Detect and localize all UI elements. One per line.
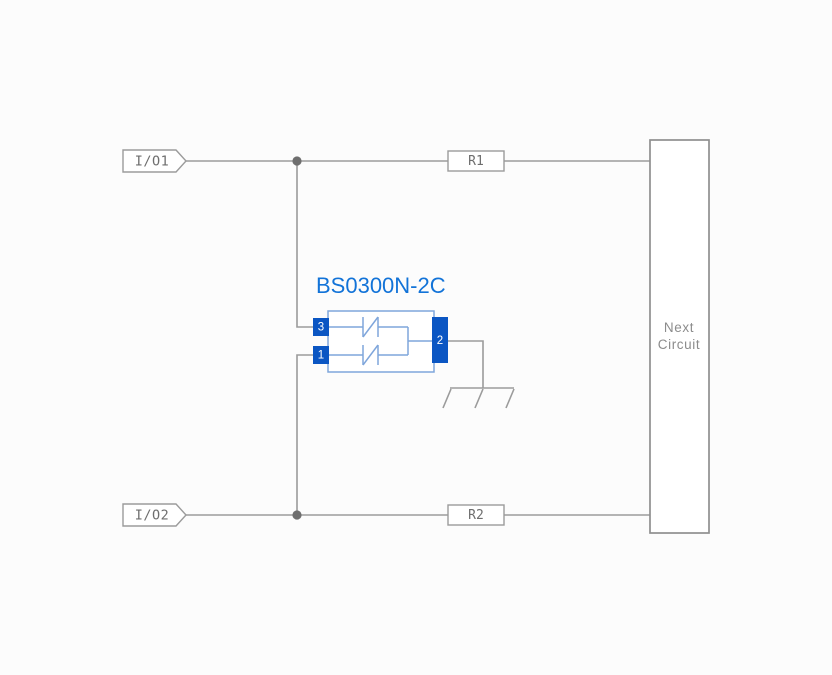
wire-junction-top-to-pin3 bbox=[297, 161, 313, 327]
next-circuit-block: Next Circuit bbox=[650, 140, 709, 533]
next-circuit-label-line2: Circuit bbox=[658, 337, 700, 352]
junction-dot-top bbox=[292, 156, 301, 165]
r2-label: R2 bbox=[468, 508, 484, 523]
pin-2-number: 2 bbox=[437, 335, 443, 347]
io2-terminal: I/O2 bbox=[123, 504, 186, 526]
pin-3: 3 bbox=[313, 318, 329, 336]
ground-hash-middle bbox=[475, 389, 483, 408]
wire-pin2-to-ground bbox=[448, 341, 483, 388]
schematic-page: I/O1 I/O2 R1 R2 Next Circuit BS0300N-2C bbox=[0, 0, 832, 675]
io1-label: I/O1 bbox=[135, 154, 170, 170]
io1-terminal: I/O1 bbox=[123, 150, 186, 172]
ground-hash-left bbox=[443, 389, 451, 408]
resistor-r2: R2 bbox=[448, 505, 504, 525]
io2-label: I/O2 bbox=[135, 508, 170, 524]
r1-label: R1 bbox=[468, 154, 484, 169]
pin-2: 2 bbox=[432, 317, 448, 363]
pin-1: 1 bbox=[313, 346, 329, 364]
tvs-diode-component: BS0300N-2C 3 bbox=[313, 273, 448, 372]
wire-pin1-to-junction-bottom bbox=[297, 355, 313, 515]
ground-hash-right bbox=[506, 389, 514, 408]
schematic-canvas: I/O1 I/O2 R1 R2 Next Circuit BS0300N-2C bbox=[0, 0, 832, 675]
pin-1-number: 1 bbox=[318, 350, 324, 362]
component-title: BS0300N-2C bbox=[316, 273, 446, 298]
ground-icon bbox=[443, 388, 514, 408]
resistor-r1: R1 bbox=[448, 151, 504, 171]
pin-3-number: 3 bbox=[318, 322, 324, 334]
next-circuit-label-line1: Next bbox=[664, 320, 694, 335]
junction-dot-bottom bbox=[292, 510, 301, 519]
